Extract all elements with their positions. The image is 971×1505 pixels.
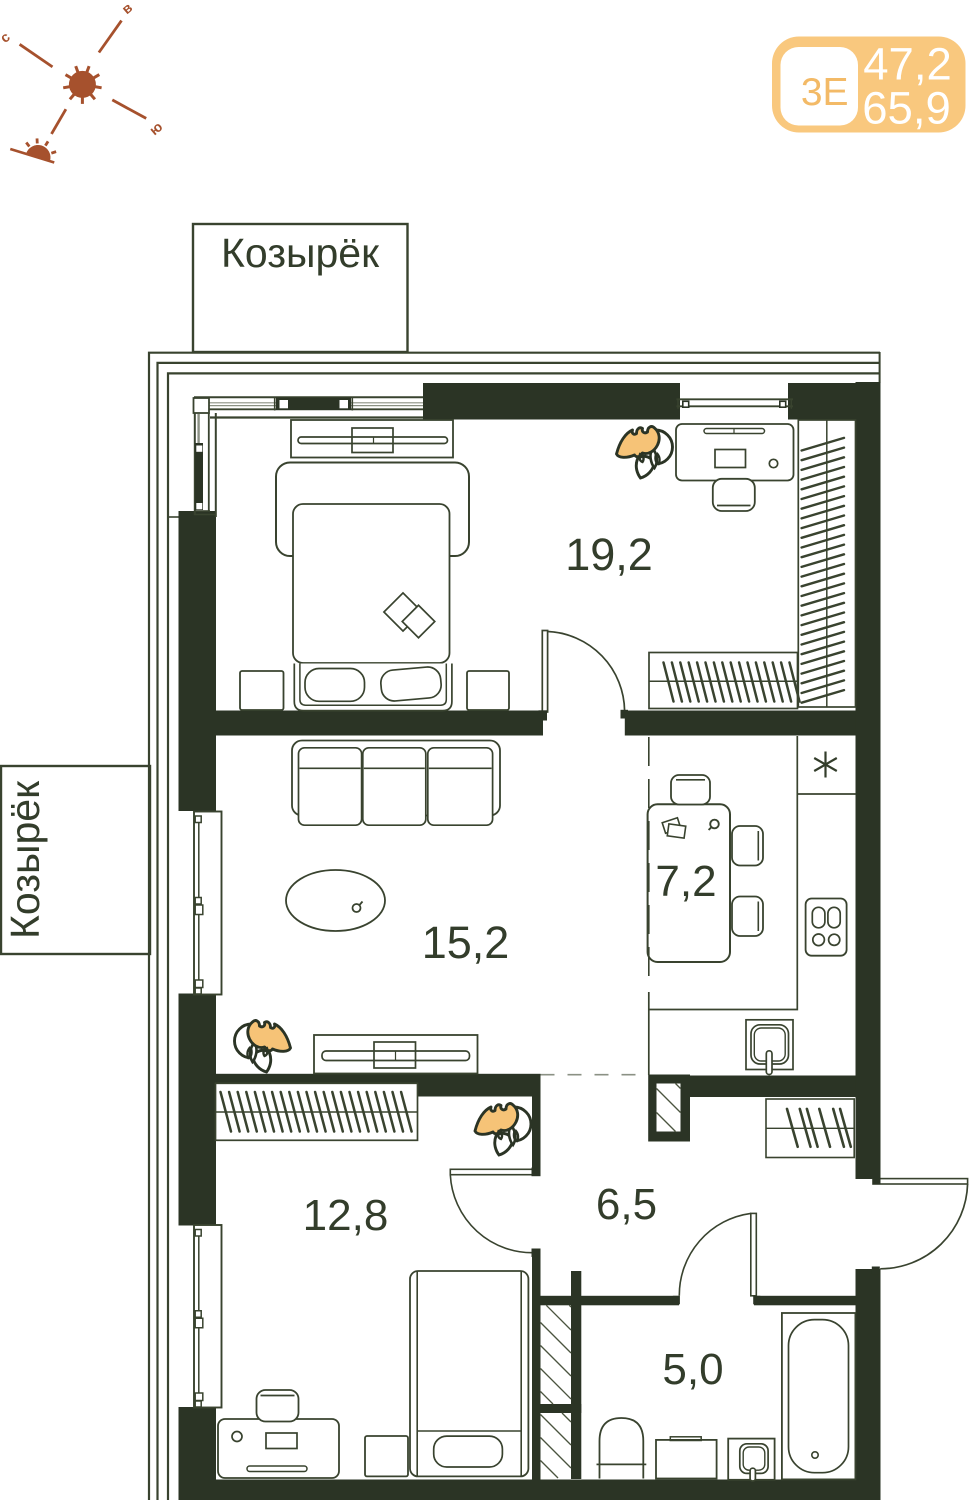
svg-text:5,0: 5,0 bbox=[662, 1345, 723, 1394]
svg-text:12,8: 12,8 bbox=[303, 1191, 389, 1240]
svg-text:Козырёк: Козырёк bbox=[2, 780, 48, 939]
svg-text:6,5: 6,5 bbox=[596, 1180, 657, 1229]
svg-text:3Е: 3Е bbox=[801, 71, 849, 114]
svg-text:15,2: 15,2 bbox=[422, 917, 510, 968]
svg-text:19,2: 19,2 bbox=[565, 529, 653, 580]
svg-text:7,2: 7,2 bbox=[655, 857, 716, 906]
svg-text:65,9: 65,9 bbox=[862, 83, 951, 134]
svg-text:Козырёк: Козырёк bbox=[221, 230, 380, 276]
